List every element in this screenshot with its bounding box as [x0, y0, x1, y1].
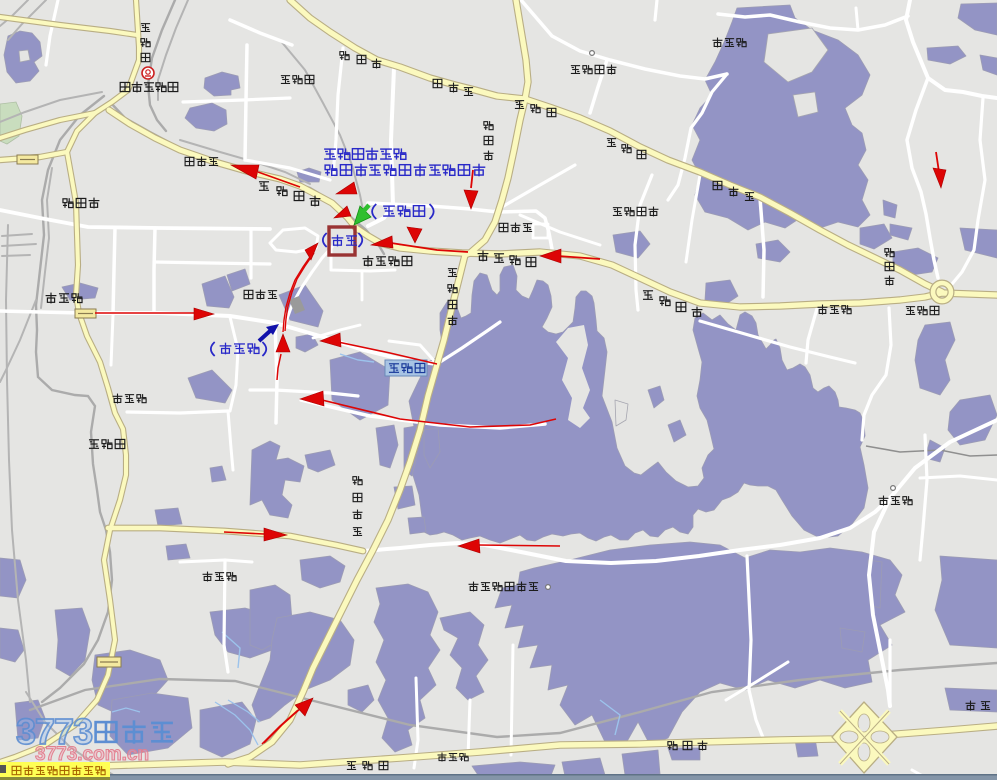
svg-text:3773.com.cn: 3773.com.cn — [35, 744, 149, 765]
